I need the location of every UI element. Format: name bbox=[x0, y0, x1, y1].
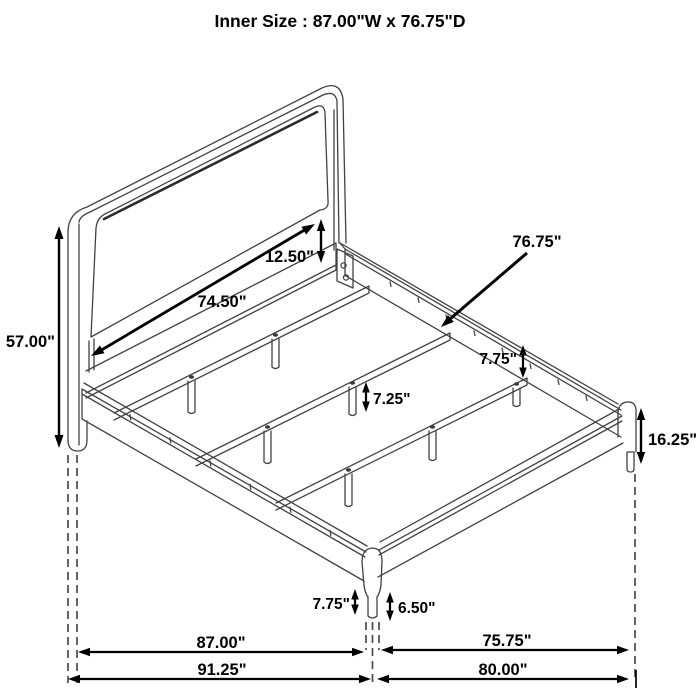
dim-side-rail-height: 7.75" bbox=[479, 351, 517, 368]
bed-frame-drawing: 74.50" 12.50" 76.75" 7.75" 7.25" 57.00" … bbox=[0, 0, 700, 700]
near-side-rail bbox=[82, 383, 367, 581]
dim-inner-width: 87.00" bbox=[196, 634, 245, 652]
dim-inner-depth-floor: 75.75" bbox=[482, 632, 531, 650]
panel-top-seam bbox=[104, 112, 317, 219]
support-legs bbox=[188, 333, 520, 506]
dim-corner-leg-height: 16.25" bbox=[648, 431, 697, 449]
page-title: Inner Size : 87.00"W x 76.75"D bbox=[214, 11, 465, 31]
dim-front-leg-height: 7.75" bbox=[312, 596, 350, 613]
front-leg bbox=[362, 548, 382, 618]
dim-headboard-inner-width: 74.50" bbox=[197, 293, 246, 311]
dim-center-leg-height: 7.25" bbox=[373, 391, 411, 408]
dim-overall-width: 91.25" bbox=[197, 661, 246, 679]
dimension-diagram: 74.50" 12.50" 76.75" 7.75" 7.25" 57.00" … bbox=[0, 0, 700, 700]
dim-inner-depth: 76.75" bbox=[512, 233, 561, 251]
headboard bbox=[68, 86, 346, 451]
dim-overall-depth: 80.00" bbox=[478, 661, 527, 679]
dim-front-leg-lower: 6.50" bbox=[398, 600, 436, 617]
dim-headboard-height: 57.00" bbox=[6, 333, 55, 351]
dimension-annotations: 74.50" 12.50" 76.75" 7.75" 7.25" 57.00" … bbox=[6, 219, 697, 683]
dim-panel-gap: 12.50" bbox=[265, 248, 314, 266]
